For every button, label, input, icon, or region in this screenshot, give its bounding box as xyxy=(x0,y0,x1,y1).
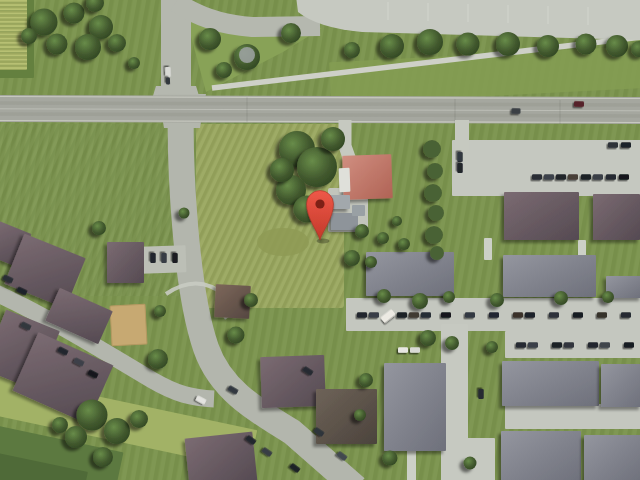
apartment-roof-se-1 xyxy=(384,363,446,451)
parked-car xyxy=(619,174,629,180)
apartment-roof-se-5 xyxy=(584,435,640,480)
tree xyxy=(602,291,614,303)
tree xyxy=(377,289,391,303)
apartment-roof-se-4 xyxy=(501,431,581,480)
tree xyxy=(104,418,130,444)
parked-car xyxy=(606,174,616,180)
tree xyxy=(355,224,369,238)
tree xyxy=(52,417,68,433)
tree xyxy=(216,62,232,78)
apartment-roof-e-2 xyxy=(503,255,596,297)
satellite-imagery xyxy=(0,0,640,480)
parked-car xyxy=(549,312,559,318)
tree xyxy=(228,327,245,344)
tree xyxy=(270,158,294,182)
tree xyxy=(321,127,345,151)
apartment-roof-s-2 xyxy=(316,389,377,444)
parked-car xyxy=(532,174,542,180)
main-road-wheel-band-top xyxy=(0,103,640,105)
parked-car xyxy=(593,174,603,180)
hedge-bush xyxy=(424,184,442,202)
parked-car xyxy=(588,342,598,348)
parked-car xyxy=(621,142,631,148)
hedge-bush xyxy=(428,205,444,221)
tree xyxy=(412,293,428,309)
tree xyxy=(130,410,148,428)
tree xyxy=(464,457,477,470)
apartment-roof-ne-1 xyxy=(504,192,579,240)
tree xyxy=(281,23,301,43)
parked-car xyxy=(172,253,178,263)
tree xyxy=(445,336,459,350)
parked-car xyxy=(489,312,499,318)
main-road-wheel-band-bottom xyxy=(0,114,640,116)
parked-car xyxy=(409,312,419,318)
tree xyxy=(380,34,404,58)
tree xyxy=(359,373,373,387)
walkway-1 xyxy=(484,238,492,260)
hedge-bush xyxy=(430,246,444,260)
tree xyxy=(154,305,166,317)
parked-car xyxy=(478,389,484,399)
tree xyxy=(92,221,106,235)
tree xyxy=(93,447,113,467)
parked-car xyxy=(600,342,610,348)
pin-inner-dot xyxy=(315,199,324,208)
tree xyxy=(244,293,258,307)
car-on-north-road xyxy=(166,77,170,84)
hedge-bush xyxy=(427,163,443,179)
rock-cluster xyxy=(239,47,255,63)
tree xyxy=(576,34,597,55)
parked-car xyxy=(597,312,607,318)
apartment-roof-se-2 xyxy=(502,361,599,406)
southeast-drive xyxy=(505,404,640,429)
outbuilding-3 xyxy=(352,205,365,216)
tree xyxy=(554,291,568,305)
parked-car xyxy=(573,312,583,318)
parked-car xyxy=(516,342,526,348)
parked-car xyxy=(624,342,634,348)
tree xyxy=(108,34,126,52)
tree xyxy=(64,3,85,24)
parked-car xyxy=(564,342,574,348)
parked-car xyxy=(528,342,538,348)
apartment-roof-se-3 xyxy=(601,364,640,407)
parked-car xyxy=(556,174,566,180)
east-parking-lot xyxy=(452,140,640,196)
tree xyxy=(179,208,190,219)
car-on-main-road xyxy=(511,108,520,114)
tree xyxy=(344,42,360,58)
tree xyxy=(496,32,520,56)
tree xyxy=(199,28,221,50)
tree xyxy=(383,451,398,466)
tree xyxy=(21,28,37,44)
tree xyxy=(392,216,402,226)
parked-car xyxy=(150,253,156,263)
parked-car xyxy=(457,152,463,162)
tree xyxy=(377,232,389,244)
parked-car xyxy=(457,163,463,173)
apartment-roof-w-0 xyxy=(107,242,144,283)
tree xyxy=(75,34,101,60)
satellite-map-view[interactable] xyxy=(0,0,640,480)
walkway-3 xyxy=(407,448,416,480)
parked-car xyxy=(161,253,167,263)
hedge-bush xyxy=(425,226,443,244)
tree xyxy=(148,349,168,369)
tree xyxy=(77,400,108,431)
tree xyxy=(486,341,498,353)
volleyball-court xyxy=(110,304,147,346)
apartment-roof-ne-2 xyxy=(593,194,640,240)
tree xyxy=(65,426,87,448)
parked-car xyxy=(581,174,591,180)
tree xyxy=(537,35,559,57)
parked-car xyxy=(465,312,475,318)
pin-shadow xyxy=(317,238,330,243)
parked-car xyxy=(513,312,523,318)
car-on-north-road xyxy=(165,67,171,77)
parked-car xyxy=(421,312,431,318)
parked-car xyxy=(397,312,407,318)
parked-car xyxy=(398,347,408,353)
tree xyxy=(420,330,436,346)
tree xyxy=(443,291,455,303)
bare-soil-patch xyxy=(257,228,309,256)
parked-car xyxy=(608,142,618,148)
car-on-main-road xyxy=(574,101,584,107)
tree xyxy=(47,34,68,55)
tree xyxy=(490,293,504,307)
red-house-white-wing xyxy=(339,168,351,192)
parked-car xyxy=(369,312,379,318)
tree xyxy=(354,409,366,421)
parked-car xyxy=(568,174,578,180)
tree xyxy=(128,57,140,69)
tree xyxy=(606,35,628,57)
tree xyxy=(365,256,377,268)
tree xyxy=(417,29,443,55)
tree xyxy=(344,250,360,266)
tree xyxy=(398,238,410,250)
parked-car xyxy=(410,347,420,353)
parked-car xyxy=(441,312,451,318)
parked-car xyxy=(552,342,562,348)
parked-car xyxy=(544,174,554,180)
parked-car xyxy=(525,312,535,318)
tree xyxy=(457,33,480,56)
hedge-bush xyxy=(423,140,441,158)
parked-car xyxy=(621,312,631,318)
parked-car xyxy=(357,312,367,318)
